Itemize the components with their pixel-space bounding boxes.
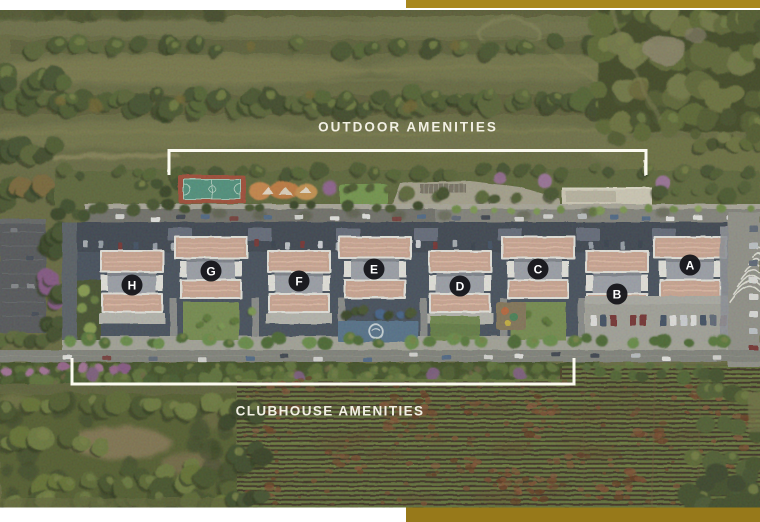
svg-text:CLUBHOUSE AMENITIES: CLUBHOUSE AMENITIES	[236, 404, 425, 419]
svg-text:E: E	[370, 262, 378, 276]
svg-text:H: H	[128, 278, 137, 292]
svg-text:B: B	[613, 287, 622, 301]
svg-text:C: C	[534, 262, 543, 276]
svg-text:OUTDOOR AMENITIES: OUTDOOR AMENITIES	[318, 120, 498, 135]
svg-text:G: G	[206, 264, 215, 278]
svg-text:D: D	[456, 279, 465, 293]
svg-text:A: A	[686, 258, 695, 272]
svg-text:F: F	[295, 274, 302, 288]
